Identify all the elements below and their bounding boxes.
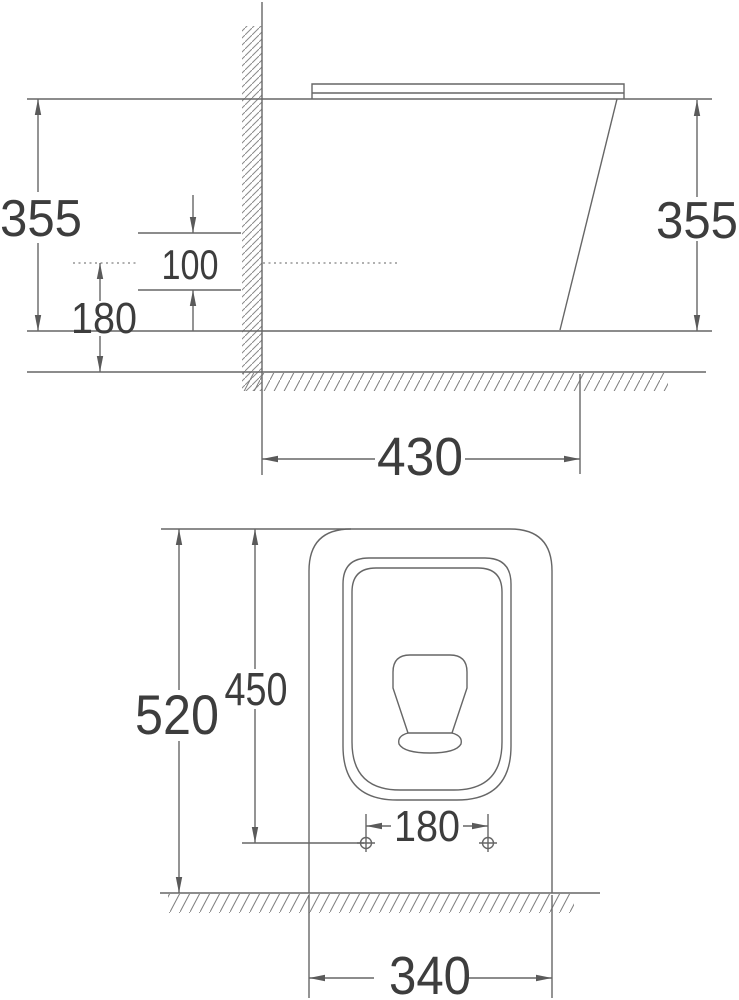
dim-label-180: 180 [71,294,137,343]
arrow-right-icon [536,975,552,981]
dim-label-340: 340 [389,946,471,1000]
arrow-up-icon [35,99,41,115]
wall-hatch [242,26,262,391]
dim-label-450: 450 [225,663,288,715]
dim-total-depth-520: 520 [135,529,219,893]
seat-ring-outer [343,558,511,800]
arrow-down-icon [694,315,700,331]
arrow-up-icon [190,290,196,306]
seat-ring-inner [352,568,502,790]
arrow-right-icon [564,456,580,462]
floor-hatch [243,373,668,391]
dim-label-355-left: 355 [0,190,82,248]
dim-label-100: 100 [162,241,219,288]
arrow-up-icon [252,529,258,545]
arrow-right-icon [472,823,488,829]
arrow-left-icon [309,975,325,981]
arrow-up-icon [694,100,700,116]
dim-height-355-left: 355 [0,99,82,331]
dim-label-355-right: 355 [656,192,738,250]
technical-drawing-page: 100 180 355 355 430 [0,0,739,1000]
arrow-left-icon [262,456,278,462]
arrow-down-icon [190,217,196,233]
fixing-hole-right [479,814,497,852]
arrow-up-icon [97,263,103,279]
dim-hole-spacing-180: 180 [366,802,488,851]
wall-cut-hatch [168,894,574,913]
arrow-down-icon [35,315,41,331]
toilet-dimension-drawing: 100 180 355 355 430 [0,0,739,1000]
seat-lid-outline [312,84,624,99]
dim-outlet-height-180: 180 [71,263,137,372]
dim-label-430: 430 [377,427,463,487]
dim-outlet-offset-100: 100 [138,195,241,331]
hole-cross-icon [357,814,375,852]
dim-label-180-plan: 180 [394,802,460,851]
bowl-sump-outline [399,733,462,753]
fixing-hole-left [357,814,375,852]
side-elevation-view: 100 180 355 355 430 [0,2,738,487]
plan-view: 180 450 520 340 [135,529,600,1000]
arrow-left-icon [366,823,382,829]
dim-label-520: 520 [135,683,219,746]
arrow-down-icon [252,827,258,843]
arrow-down-icon [176,877,182,893]
arrow-up-icon [176,529,182,545]
dim-height-355-right: 355 [656,100,738,331]
arrow-down-icon [97,356,103,372]
pan-front-slant [560,99,617,330]
hole-cross-icon [479,814,497,852]
bowl-opening-outline [393,655,467,733]
